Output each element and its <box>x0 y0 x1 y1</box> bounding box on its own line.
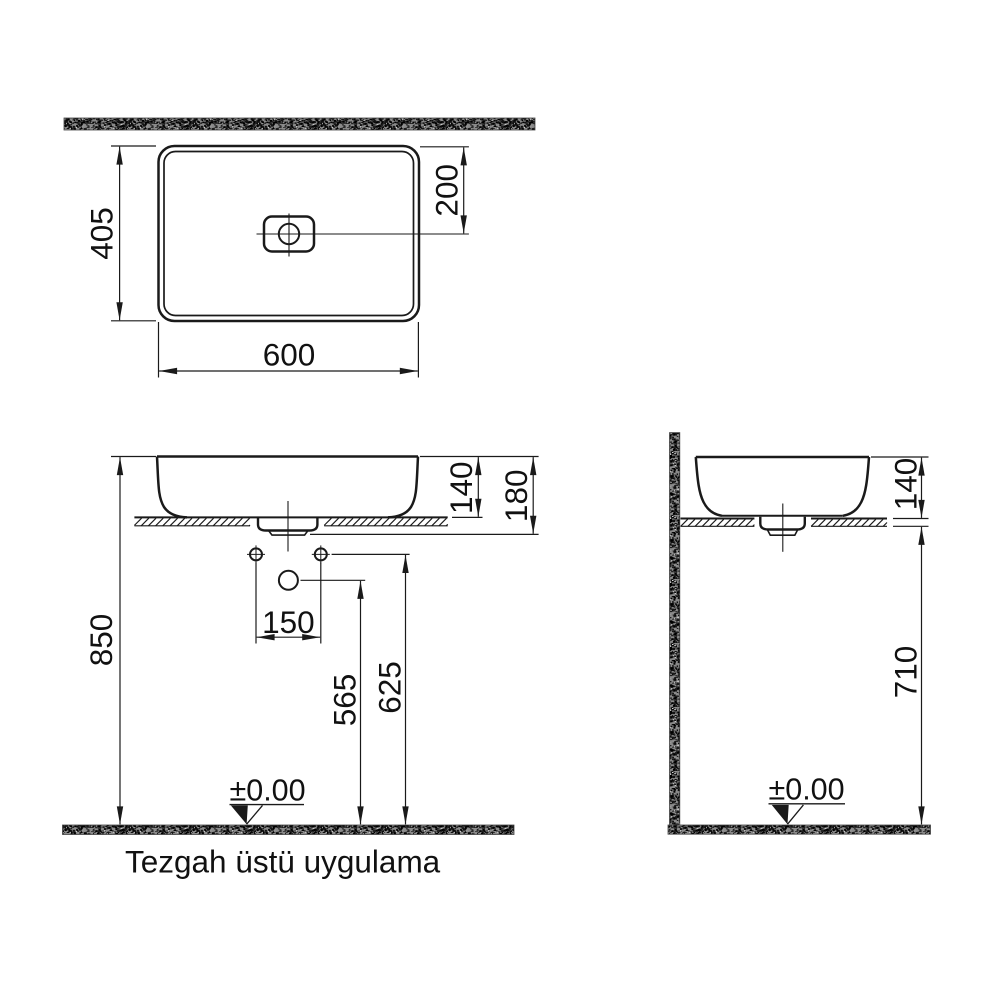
svg-text:625: 625 <box>372 661 408 714</box>
svg-text:150: 150 <box>262 604 315 640</box>
svg-text:200: 200 <box>429 164 465 217</box>
svg-text:180: 180 <box>498 470 534 523</box>
svg-text:710: 710 <box>888 646 924 699</box>
svg-text:Tezgah üstü uygulama: Tezgah üstü uygulama <box>125 844 441 880</box>
svg-text:±0.00: ±0.00 <box>769 773 845 807</box>
svg-text:140: 140 <box>443 461 479 514</box>
svg-text:±0.00: ±0.00 <box>230 774 306 808</box>
svg-text:600: 600 <box>263 337 316 373</box>
svg-text:405: 405 <box>84 207 120 260</box>
svg-text:565: 565 <box>327 674 363 727</box>
svg-text:850: 850 <box>83 614 119 667</box>
svg-text:140: 140 <box>888 458 924 511</box>
